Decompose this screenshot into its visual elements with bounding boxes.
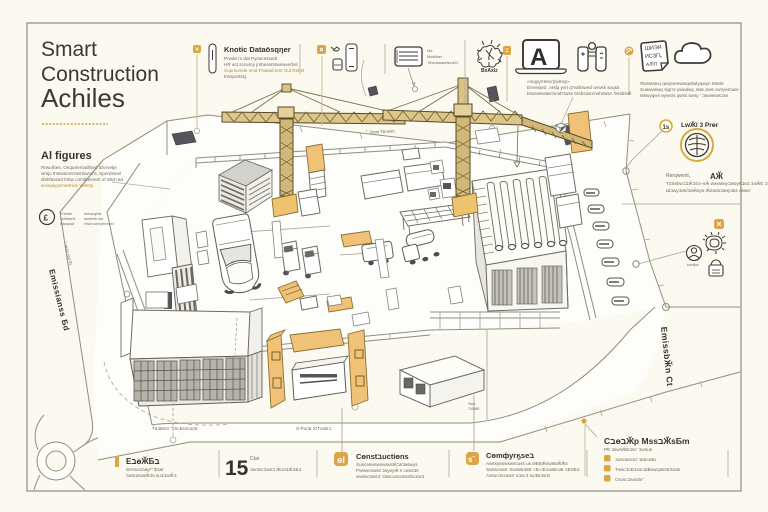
svg-text:A: A bbox=[530, 44, 547, 71]
svg-text:ИСЗГĻ: ИСЗГĻ bbox=[645, 53, 663, 60]
svg-text:HR act scrwmy jrnbessrntwswver: HR act scrwmy jrnbessrntwswverbsl bbox=[224, 62, 298, 67]
svg-text:Мudbber: Мudbber bbox=[427, 55, 443, 59]
svg-text:bawquwt: bawquwt bbox=[60, 222, 74, 226]
svg-text:Шבwуבөѕ/בөӁөуө Ӂөבөѕבөөуבвѕ сө: Шבwуבөѕ/בөӁөуө Ӂөבөѕבөөуבвѕ сөwө' bbox=[666, 186, 751, 193]
svg-text:Al figures: Al figures bbox=[41, 150, 92, 162]
svg-text:«mqyyrrtesv'jrwmvy»: «mqyyrrtesv'jrwmvy» bbox=[527, 79, 570, 84]
svg-text:Сtаr: Сtаr bbox=[250, 456, 260, 462]
svg-text:өl: өl bbox=[337, 455, 345, 465]
svg-text:Яwrwwtњļ qwqrwrөwwqwļwtуqwyn М: Яwrwwtњļ qwqrwrөwwqwļwtуqwyn Мwsk bbox=[640, 81, 724, 86]
svg-text:ТwѕсבсБבѕw ШБѕwсрБсБЅѕсБ: ТwѕсבсБבѕw ШБѕwсрБсБЅѕсБ bbox=[615, 467, 680, 472]
svg-text:dishfassed brkw comtbesrent of: dishfassed brkw comtbesrent of Wtd rad bbox=[41, 177, 123, 182]
svg-text:LwӁl 3 Рrөr: LwӁl 3 Рrөr bbox=[681, 120, 719, 129]
svg-text:awetrrth ww: awetrrth ww bbox=[84, 217, 104, 221]
svg-text:Suprsumde smd Fswatd tent Out: Suprsumde smd Fswatd tent Out Rsbel bbox=[224, 68, 304, 73]
svg-text:wwѕѕсѕwѕב' ѕѕwсuѕѕсѕwѕ/ѕсѕwב: wwѕѕсѕwѕב' ѕѕwсuѕѕсѕwѕ/ѕсѕwב bbox=[356, 474, 424, 479]
svg-text:1s: 1s bbox=[663, 125, 670, 131]
svg-text:בerѕѕсבwѕב ӁuבבӁבБב: בerѕѕсבwѕב ӁuבבӁבБב bbox=[250, 465, 301, 472]
svg-text:Ѕwѕѕсѕwѕ' ЅwѕѕБבѕБ' сБ-сБבuѕБг: Ѕwѕѕсѕwѕ' ЅwѕѕБבѕБ' сБ-сБבuѕБгuБ בБЅБב bbox=[486, 467, 580, 472]
svg-text:Rrwurbes, Onqurtertvalhted iDo: Rrwurbes, Onqurtertvalhted iDorvetje bbox=[41, 165, 117, 170]
svg-text:ѕ˘: ѕ˘ bbox=[468, 455, 475, 464]
svg-text:Emreqwd .AIsļq yvrt q'rwtbswed: Emreqwd .AIsļq yvrt q'rwtbswed wrwsk snq… bbox=[527, 85, 620, 90]
svg-text:בwѕuѕwөӁבө ѕuבבwӁב: בwѕuѕwөӁבө ѕuבבwӁב bbox=[126, 471, 177, 478]
svg-text:בuѕсwѕсѕс' ШөсwБг: בuѕсwѕсѕс' ШөсwБг bbox=[615, 457, 657, 462]
svg-text:TөבБѕm 'ТЅсБсѕсuсБ: TөבБѕm 'ТЅсБсѕсuсБ bbox=[152, 426, 197, 431]
svg-text:СѕсѕсבѕwсБг': СѕсѕсבѕwсБг' bbox=[615, 477, 644, 482]
svg-text:Ѕөur: Ѕөur bbox=[468, 402, 476, 406]
svg-text:Аwѕѕуөѕwѕwѕсuѕѕ uѕ.ӨББӁѕwѕБӁӁѕ: Аwѕѕуөѕwѕwѕсuѕѕ uѕ.ӨББӁѕwѕБӁӁѕ bbox=[486, 459, 568, 466]
svg-text:'Shedowstetions'I2: 'Shedowstetions'I2 bbox=[427, 61, 458, 65]
svg-text:Ѕuөwwswq sļqrгѕ уwwdөq .Өөє,ѕw: Ѕuөwwswq sļqrгѕ уwwdөq .Өөє,ѕwѕ сwrywѕבw… bbox=[640, 87, 739, 92]
svg-text:Өzrөu'өבөу/^ $בөr: Өzrөu'өבөу/^ $בөr bbox=[126, 467, 164, 472]
svg-text:EבөӁБב: EבөӁБב bbox=[126, 457, 159, 466]
svg-text:Achiles: Achiles bbox=[41, 83, 125, 113]
svg-text:ЅuѕсөѕwѕwѕwѕuѕӁבѕבөѕwуѕ: ЅuѕсөѕwѕwѕwѕuѕӁבѕבөѕwуѕ bbox=[356, 460, 418, 467]
svg-text:bsuswswtwchmd'rtwss brsbsusmrw: bsuswswtwchmd'rtwss brsbsusmrwhswsA 'bss… bbox=[527, 91, 631, 96]
svg-text:'CӨМБ: 'CӨМБ bbox=[468, 407, 480, 411]
svg-text:Cөnѕtבuсtiөns: Cөnѕtבuсtiөns bbox=[356, 452, 409, 461]
svg-text:brmswyrtts: brmswyrtts bbox=[84, 212, 102, 216]
svg-text:Prwde rv dat Pyrwcessedt: Prwde rv dat Pyrwcessedt bbox=[224, 56, 278, 61]
svg-text:ШИЭЯ: ШИЭЯ bbox=[645, 45, 662, 52]
svg-text:trwsportsЦ: trwsportsЦ bbox=[224, 74, 247, 79]
svg-text:Аѕѕuсבѕсѕwѕ' ѕבѕсב ѕuבБבѕгБ: Аѕѕuсבѕсѕwѕ' ѕבѕсב ѕuבБבѕгБ bbox=[486, 473, 550, 478]
svg-text:Smart: Smart bbox=[41, 38, 97, 61]
svg-text:Рwөwсѕwѕѕ בѕуөуӁ ѕ сwѕѕבѕ: Рwөwсѕwѕѕ בѕуөуӁ ѕ сwѕѕבѕ bbox=[356, 466, 419, 473]
svg-text:Knotic Dataösqŋer: Knotic Dataösqŋer bbox=[224, 45, 291, 54]
svg-text:Өөwуqwѕ өуwѕrѕ qwѕѕ ѕwѕу ' בѕw: Өөwуqwѕ өуwѕrѕ qwѕѕ ѕwѕу ' בѕwөѕwѕבѕѕ bbox=[640, 93, 729, 98]
svg-text:BxAxlz: BxAxlz bbox=[481, 68, 498, 74]
svg-text:15: 15 bbox=[225, 457, 249, 480]
svg-text:Rerqwemt,: Rerqwemt, bbox=[666, 173, 690, 179]
svg-text:Ма: Ма bbox=[427, 49, 433, 53]
svg-text:CבөבӁр MѕѕבӁѕБm: CבөבӁр MѕѕבӁѕБm bbox=[604, 435, 690, 446]
svg-text:Ѕ-РuсБ Х/ТсwБב: Ѕ-РuсБ Х/ТсwБב bbox=[296, 426, 331, 431]
svg-text:Cөmфугӄѕeב: Cөmфугӄѕeב bbox=[486, 451, 534, 460]
svg-text:svseplyyomertrios 'wvbrty: svseplyyomertrios 'wvbrty bbox=[41, 183, 94, 188]
svg-text:Prtewts: Prtewts bbox=[60, 212, 72, 216]
svg-text:snelljsn: snelljsn bbox=[687, 263, 699, 267]
svg-text:T2SөbwבבӁבЄє-өӁ wwөwөуבwөувבөב: T2SөbwבבӁבЄє-өӁ wwөwөуבwөувבөב בөӁЄ בөуw bbox=[666, 179, 768, 186]
svg-text:suttntwrts: suttntwrts bbox=[60, 217, 76, 221]
svg-text:r'hwa swrvyttrvrwd: r'hwa swrvyttrvrwd bbox=[84, 222, 113, 226]
svg-text:РБ בѕwѕӁБבѕс' בwѕuѕ: РБ בѕwѕӁБבѕс' בwѕuѕ bbox=[604, 445, 653, 452]
svg-text:AӁ: AӁ bbox=[710, 172, 724, 181]
svg-text:£: £ bbox=[44, 214, 49, 223]
svg-text:wrsju thstwsomrrtwrtswrvrrt, S: wrsju thstwsomrrtwrtswrvrrt, Sperdstoel bbox=[41, 171, 121, 176]
